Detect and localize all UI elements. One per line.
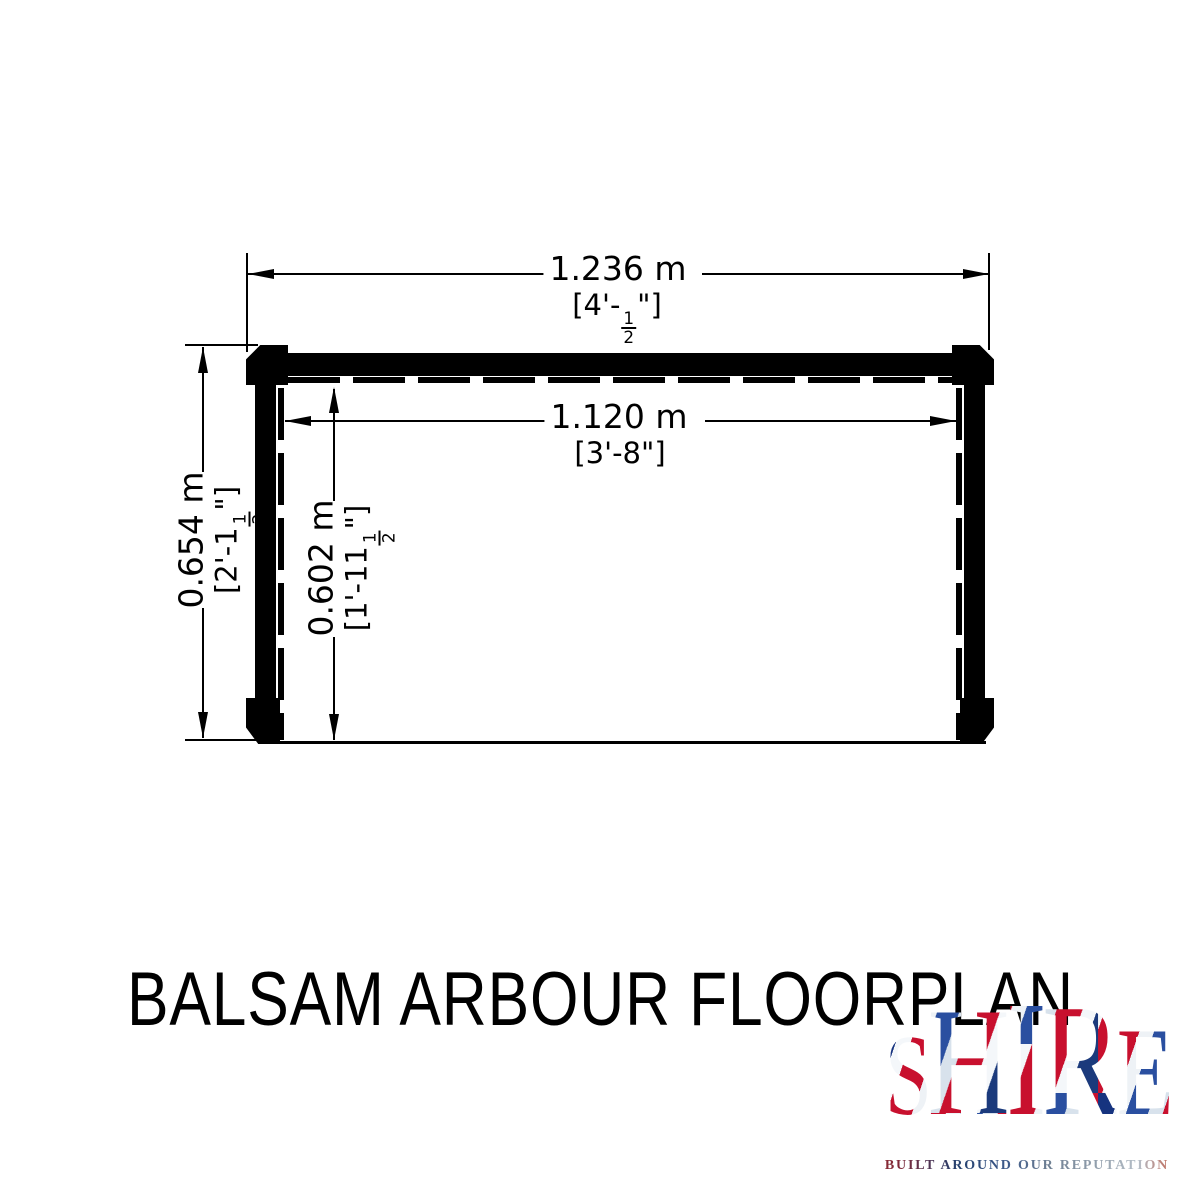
inner-width-metric: 1.120 m	[544, 400, 693, 435]
inner-width-imperial: [3'-8"]	[568, 438, 671, 468]
top-inner-dashed-line	[288, 377, 952, 383]
overall-width-imperial: [4'-12"]	[566, 290, 668, 347]
brand-letter: S	[885, 1010, 928, 1142]
imperial-prefix: [1'-11	[339, 546, 373, 631]
brand-tagline: BUILT AROUND OUR REPUTATION	[852, 1158, 1200, 1174]
arrowhead-left	[248, 269, 274, 279]
brand-logo: S H I R E BUILT AROUND OUR REPUTATION	[852, 1032, 1200, 1182]
overall-depth-label: 0.654 m [2'-112"]	[174, 471, 269, 608]
dimension-line	[702, 273, 989, 275]
brand-letter: H	[928, 973, 1006, 1152]
extension-line	[185, 344, 258, 346]
extension-line	[988, 253, 990, 350]
corner-post-bottom-right	[960, 698, 994, 744]
arrowhead-right	[963, 269, 989, 279]
fraction: 12	[621, 310, 636, 347]
fraction-denominator: 2	[381, 530, 399, 545]
fraction: 12	[361, 530, 398, 545]
corner-post-top-left	[246, 345, 288, 385]
arrowhead-up	[329, 387, 339, 413]
arrowhead-up	[198, 347, 208, 373]
imperial-prefix: [2'-1	[209, 527, 243, 594]
corner-post-bottom-left	[246, 698, 280, 744]
brand-letter: R	[1042, 968, 1117, 1153]
inner-depth-metric: 0.602 m	[304, 499, 341, 636]
arrowhead-left	[285, 416, 311, 426]
fraction: 12	[231, 512, 268, 527]
brand-letter: E	[1117, 1001, 1170, 1145]
fraction-denominator: 2	[621, 329, 636, 347]
bottom-edge-line	[264, 741, 986, 744]
imperial-suffix: "]	[209, 486, 243, 511]
dimension-line	[285, 420, 555, 422]
arrowhead-down	[198, 712, 208, 738]
extension-line	[185, 739, 258, 741]
extension-line	[246, 253, 248, 352]
overall-depth-metric: 0.654 m	[174, 471, 211, 608]
top-wall	[260, 353, 980, 376]
left-inner-dashed-line	[278, 388, 284, 740]
imperial-suffix: "]	[339, 505, 373, 530]
brand-wordmark: S H I R E	[898, 964, 1157, 1154]
inner-depth-imperial: [1'-1112"]	[340, 499, 398, 636]
brand-letter: I	[1006, 964, 1042, 1154]
floorplan-page: 1.236 m [4'-12"] 1.120 m [3'-8"] 0.654 m…	[0, 0, 1200, 1200]
dimension-line	[248, 273, 558, 275]
overall-width-metric: 1.236 m	[543, 252, 692, 287]
right-inner-dashed-line	[956, 388, 962, 740]
dimension-line	[705, 420, 956, 422]
inner-depth-label: 0.602 m [1'-1112"]	[304, 499, 399, 636]
arrowhead-right	[930, 416, 956, 426]
imperial-suffix: "]	[637, 288, 662, 322]
overall-depth-imperial: [2'-112"]	[210, 471, 268, 608]
arrowhead-down	[329, 714, 339, 740]
fraction-denominator: 2	[251, 512, 269, 527]
corner-post-top-right	[952, 345, 994, 385]
imperial-prefix: [4'-	[572, 288, 620, 322]
right-wall	[964, 375, 985, 705]
